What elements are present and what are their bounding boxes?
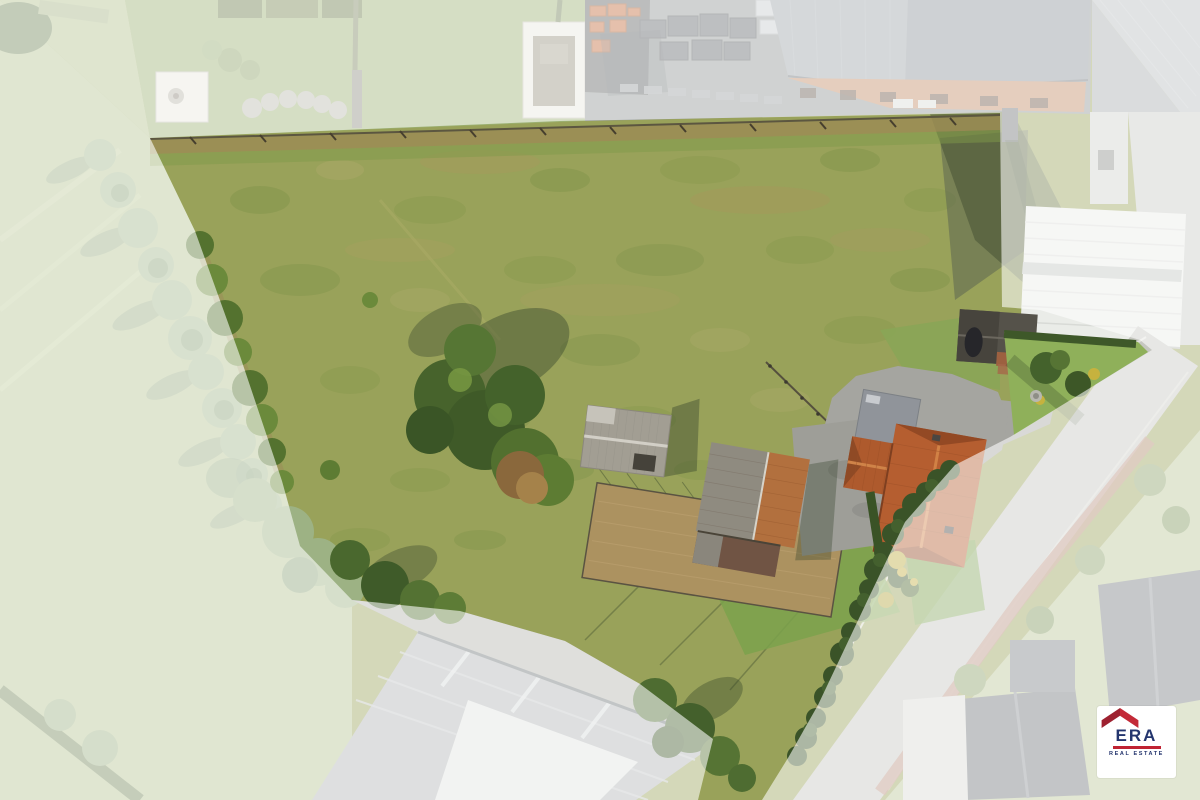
aerial-photo-svg: [0, 0, 1200, 800]
era-logo-roof-icon: [1097, 706, 1143, 730]
era-logo: ERA REAL ESTATE: [1097, 706, 1176, 778]
era-logo-bar: [1113, 746, 1161, 749]
era-tagline: REAL ESTATE: [1109, 751, 1164, 757]
aerial-photo: ERA REAL ESTATE: [0, 0, 1200, 800]
